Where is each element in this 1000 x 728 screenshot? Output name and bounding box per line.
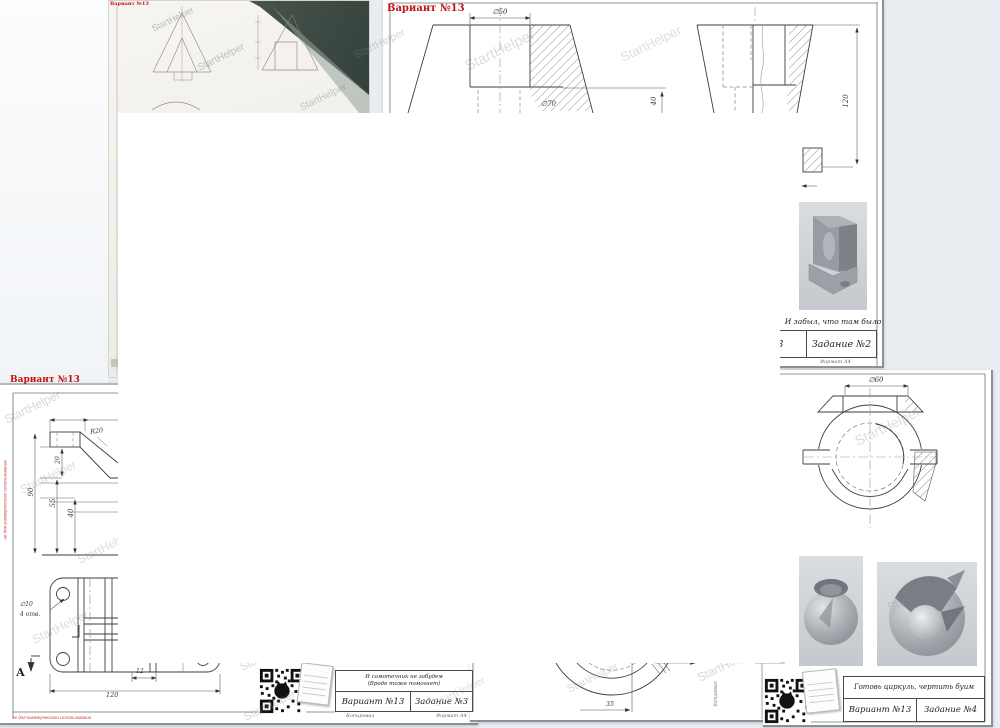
sheet3-bottom-watermark: не для коммерческого использования — [12, 715, 91, 720]
3d-render-sphere-a — [799, 556, 863, 666]
dim-20: 20 — [55, 456, 62, 464]
dim-40: 40 — [67, 509, 75, 518]
drawings-collage: Вариант №13 Вариант №13 Вариант №13 ∅50 … — [0, 0, 1000, 728]
photo-fragment — [111, 359, 118, 367]
section-label-a: А — [16, 666, 25, 679]
3d-render-cylinder-part — [799, 202, 867, 310]
sheet3-title-block: И самоточник не забудем (Вроде тоже помо… — [335, 670, 473, 712]
dim-12: 12 — [136, 668, 144, 675]
title-block-note-line1: И самоточник не забудем — [365, 674, 443, 681]
dim-d10: ∅10 — [20, 601, 33, 608]
dim-d60: ∅60 — [868, 376, 883, 384]
dim-35: 35 — [606, 700, 614, 708]
title-block-task: Задание №2 — [807, 331, 876, 357]
sheet4-title-block: Готовь циркуль, чертить буим Вариант №13… — [843, 676, 985, 722]
sheet5-copied-label: Копировал — [713, 682, 719, 707]
sheet2-format-label: Формат А4 — [820, 359, 851, 365]
title-block-variant: Вариант №13 — [844, 699, 917, 721]
sheet2-handwritten-note: И забыл, что там было — [785, 317, 882, 326]
dim-120-plate: 120 — [106, 691, 118, 699]
sheet3-side-watermark: не для коммерческого использования — [3, 460, 8, 539]
photo-variant-label: Вариант №13 — [110, 1, 149, 7]
sheet3-format-label: Формат А4 — [436, 713, 467, 719]
sticker-note-icon — [297, 662, 334, 706]
sticker-note-icon — [802, 668, 840, 713]
sheet-task4 — [763, 370, 993, 727]
background-patch — [0, 0, 108, 383]
sheet3-variant-label: Вариант №13 — [10, 375, 80, 385]
title-block-variant: Вариант №13 — [336, 692, 411, 711]
dim-55: 55 — [49, 499, 57, 508]
white-overlay — [118, 113, 780, 663]
dim-120: 120 — [842, 94, 850, 107]
dim-holes-count: 4 отв. — [20, 611, 40, 618]
sheet3-copied-label: Копировал — [346, 713, 375, 719]
3d-render-sphere-b — [877, 562, 977, 666]
dim-d50: ∅50 — [492, 8, 507, 16]
title-block-note-line2: (Вроде тоже помогает) — [368, 681, 441, 688]
dim-d70: ∅70 — [541, 100, 556, 108]
dim-90: 90 — [27, 488, 35, 497]
title-block-task: Задание №3 — [411, 692, 472, 711]
title-block-task: Задание №4 — [917, 699, 984, 721]
sheet2-variant-label: Вариант №13 — [387, 3, 465, 14]
dim-40: 40 — [650, 97, 658, 106]
title-block-note: Готовь циркуль, чертить буим — [854, 683, 974, 692]
